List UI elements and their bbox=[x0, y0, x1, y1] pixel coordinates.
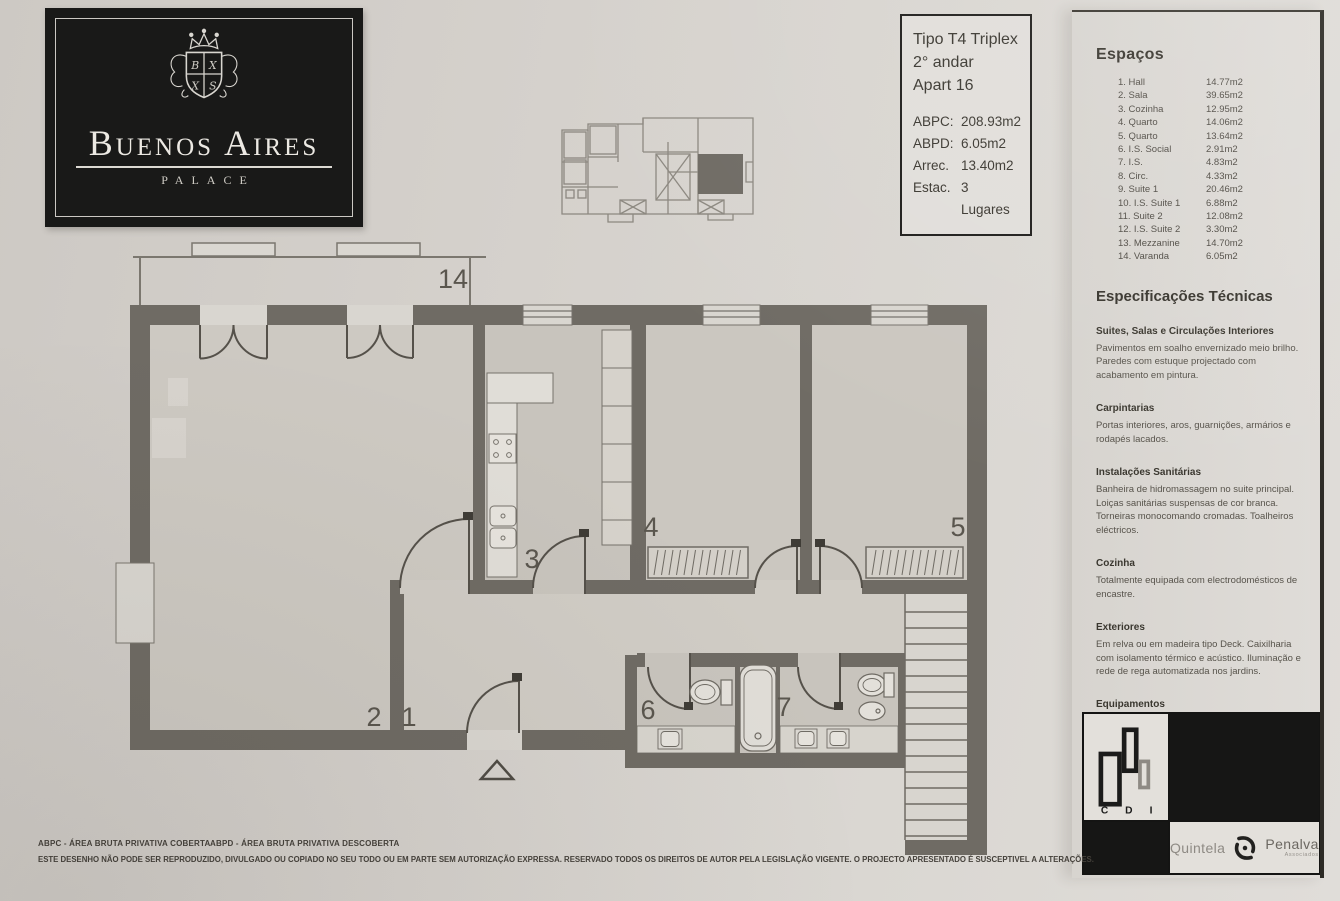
spaces-row: 10. I.S. Suite 16.88m2 bbox=[1118, 197, 1306, 210]
cdi-logo-cell: C D I bbox=[1084, 714, 1168, 820]
info-label: ABPD: bbox=[913, 133, 961, 155]
spaces-row: 4. Quarto14.06m2 bbox=[1118, 116, 1306, 129]
spaces-row: 1. Hall14.77m2 bbox=[1118, 76, 1306, 89]
cdi-logo-icon: C D I bbox=[1086, 717, 1166, 817]
spaces-list: 1. Hall14.77m2 2. Sala39.65m2 3. Cozinha… bbox=[1118, 76, 1306, 264]
specs-title: Especificações Técnicas bbox=[1096, 288, 1306, 305]
spec-section: Suites, Salas e Circulações Interiores P… bbox=[1096, 326, 1302, 382]
spaces-row: 6. I.S. Social2.91m2 bbox=[1118, 143, 1306, 156]
info-row: Estac. 3 Lugares bbox=[913, 177, 1021, 221]
abpc-definition: ABPC - ÁREA BRUTA PRIVATIVA COBERTA bbox=[38, 839, 210, 848]
agency-swirl-icon bbox=[1232, 835, 1258, 861]
agency-sub-label: Associados bbox=[1285, 853, 1319, 859]
info-row: ABPC: 208.93m2 bbox=[913, 111, 1021, 133]
room-number-varanda: 14 bbox=[438, 264, 468, 294]
info-label: Arrec. bbox=[913, 155, 961, 177]
spaces-row: 3. Cozinha12.95m2 bbox=[1118, 103, 1306, 116]
copyright-disclaimer: ESTE DESENHO NÃO PODE SER REPRODUZIDO, D… bbox=[38, 855, 1094, 864]
brand-block: C D I Quintela Penalva Associados bbox=[1082, 712, 1320, 875]
room-number-is6: 6 bbox=[640, 695, 655, 725]
spaces-row: 9. Suite 120.46m2 bbox=[1118, 183, 1306, 196]
brand-black-cell bbox=[1084, 822, 1168, 873]
svg-text:I: I bbox=[1150, 806, 1153, 817]
room-number-cozinha: 3 bbox=[524, 544, 539, 574]
spaces-row: 11. Suite 212.08m2 bbox=[1118, 210, 1306, 223]
logo-rule bbox=[76, 166, 332, 168]
spec-section: Cozinha Totalmente equipada com electrod… bbox=[1096, 558, 1302, 601]
spaces-row: 7. I.S.4.83m2 bbox=[1118, 156, 1306, 169]
logo-subtitle: PALACE bbox=[153, 173, 255, 188]
info-value: 208.93m2 bbox=[961, 111, 1021, 133]
svg-text:D: D bbox=[1125, 806, 1132, 817]
spec-section: Carpintarias Portas interiores, aros, gu… bbox=[1096, 403, 1302, 446]
unit-info-box: Tipo T4 Triplex 2° andar Apart 16 ABPC: … bbox=[900, 14, 1032, 236]
spaces-row: 2. Sala39.65m2 bbox=[1118, 89, 1306, 102]
key-plan-highlight bbox=[698, 154, 743, 194]
spaces-row: 8. Circ.4.33m2 bbox=[1118, 170, 1306, 183]
spaces-row: 14. Varanda6.05m2 bbox=[1118, 250, 1306, 263]
info-value: 13.40m2 bbox=[961, 155, 1014, 177]
spaces-title: Espaços bbox=[1096, 46, 1306, 64]
balcony bbox=[133, 243, 486, 305]
crest-icon: B X X S bbox=[139, 25, 269, 123]
agency-name-right-wrap: Penalva Associados bbox=[1265, 837, 1318, 859]
buenos-aires-logo-box: B X X S Buenos Aires PALACE bbox=[45, 8, 363, 227]
abpd-definition: ABPD - ÁREA BRUTA PRIVATIVA DESCOBERTA bbox=[210, 839, 400, 848]
crest-letter: S bbox=[209, 80, 216, 93]
unit-floor: 2° andar bbox=[913, 51, 1021, 74]
spec-section: Exteriores Em relva ou em madeira tipo D… bbox=[1096, 622, 1302, 678]
room-number-sala: 2 bbox=[366, 702, 381, 732]
agency-name-right: Penalva bbox=[1265, 837, 1318, 851]
crest-letter: X bbox=[208, 59, 218, 72]
spaces-row: 13. Mezzanine14.70m2 bbox=[1118, 237, 1306, 250]
room-number-quarto5: 5 bbox=[950, 512, 965, 542]
scanned-floorplan-page: 1 2 3 4 5 6 7 14 bbox=[0, 0, 1340, 901]
spaces-row: 12. I.S. Suite 23.30m2 bbox=[1118, 223, 1306, 236]
key-plan bbox=[548, 102, 770, 232]
logo-inner-border: B X X S Buenos Aires PALACE bbox=[55, 18, 353, 217]
room-number-hall: 1 bbox=[401, 702, 416, 732]
info-value: 6.05m2 bbox=[961, 133, 1006, 155]
entrance-arrow-icon bbox=[481, 761, 513, 779]
info-label: Estac. bbox=[913, 177, 961, 221]
unit-apartment: Apart 16 bbox=[913, 74, 1021, 97]
info-row: Arrec. 13.40m2 bbox=[913, 155, 1021, 177]
room-number-is7: 7 bbox=[776, 692, 791, 722]
crest-letter: X bbox=[190, 80, 200, 93]
area-legend: ABPC - ÁREA BRUTA PRIVATIVA COBERTA ABPD… bbox=[38, 839, 1038, 851]
logo-title: Buenos Aires bbox=[89, 125, 320, 161]
unit-type: Tipo T4 Triplex bbox=[913, 28, 1021, 51]
brand-black-cell bbox=[1170, 714, 1319, 820]
info-value: 3 Lugares bbox=[961, 177, 1021, 221]
agency-name-left: Quintela bbox=[1170, 840, 1225, 856]
crest-letter: B bbox=[190, 59, 199, 72]
svg-text:C: C bbox=[1101, 806, 1109, 817]
spec-section: Instalações Sanitárias Banheira de hidro… bbox=[1096, 467, 1302, 537]
quintela-penalva-cell: Quintela Penalva Associados bbox=[1170, 822, 1319, 873]
room-number-quarto4: 4 bbox=[643, 512, 658, 542]
info-row: ABPD: 6.05m2 bbox=[913, 133, 1021, 155]
info-label: ABPC: bbox=[913, 111, 961, 133]
unit-areas: ABPC: 208.93m2 ABPD: 6.05m2 Arrec. 13.40… bbox=[913, 111, 1021, 221]
spaces-row: 5. Quarto13.64m2 bbox=[1118, 130, 1306, 143]
